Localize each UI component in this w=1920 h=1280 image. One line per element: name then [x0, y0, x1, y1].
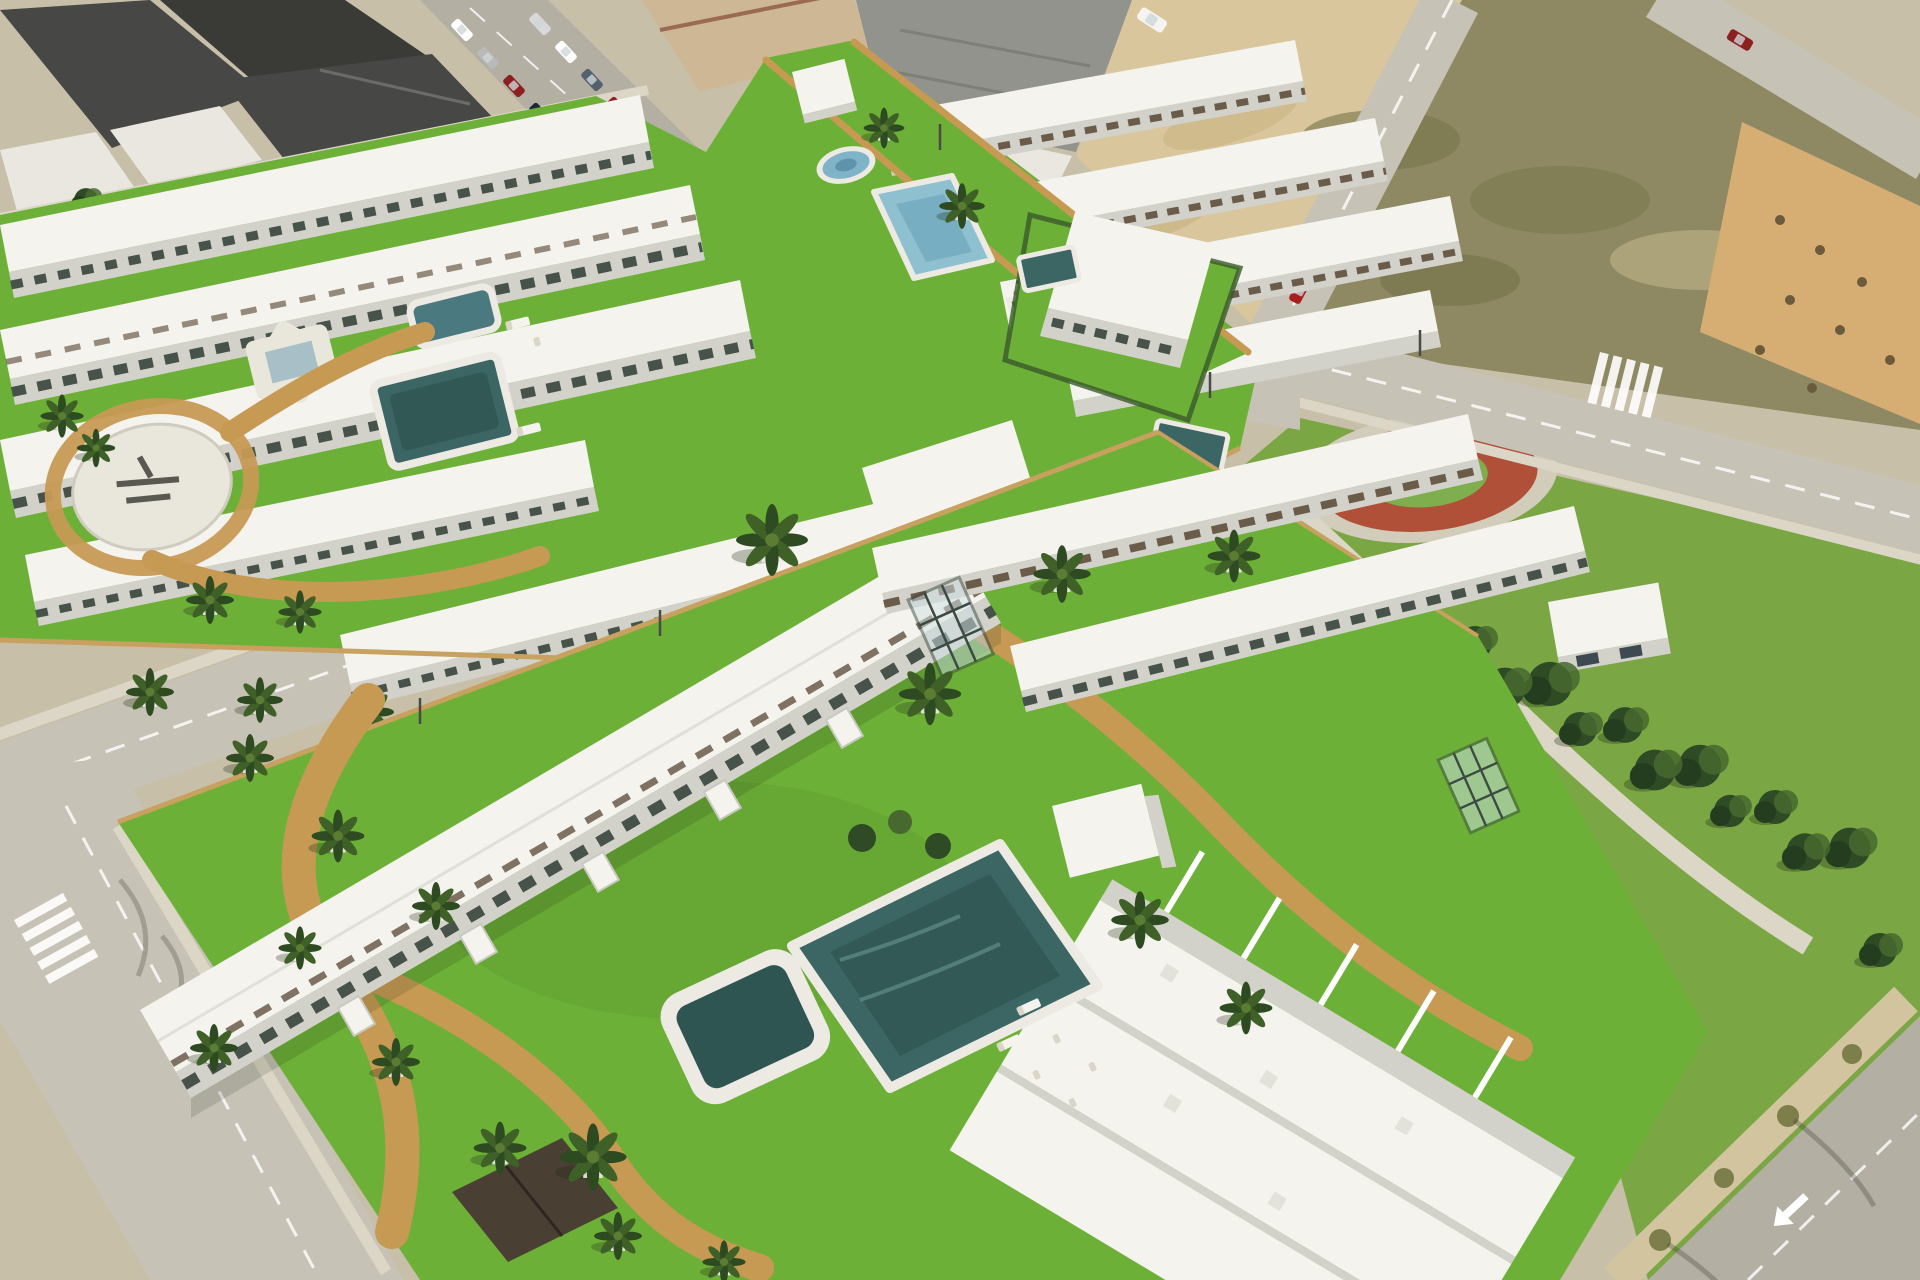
aerial-render: [0, 0, 1920, 1280]
bush: [888, 810, 912, 834]
bush-dot: [1775, 215, 1785, 225]
bush-dot: [1785, 295, 1795, 305]
bush: [848, 824, 876, 852]
aerial-render-page: [0, 0, 1920, 1280]
bush-dot: [1857, 277, 1867, 287]
bush-dot: [1807, 383, 1817, 393]
verge-tree: [1714, 1168, 1734, 1188]
bush-dot: [1885, 355, 1895, 365]
bush: [925, 833, 951, 859]
verge-tree: [1649, 1229, 1671, 1251]
verge-tree: [1842, 1044, 1862, 1064]
bush-dot: [1815, 245, 1825, 255]
bush-dot: [1755, 345, 1765, 355]
scrub-patch: [1470, 166, 1650, 234]
bush-dot: [1835, 325, 1845, 335]
